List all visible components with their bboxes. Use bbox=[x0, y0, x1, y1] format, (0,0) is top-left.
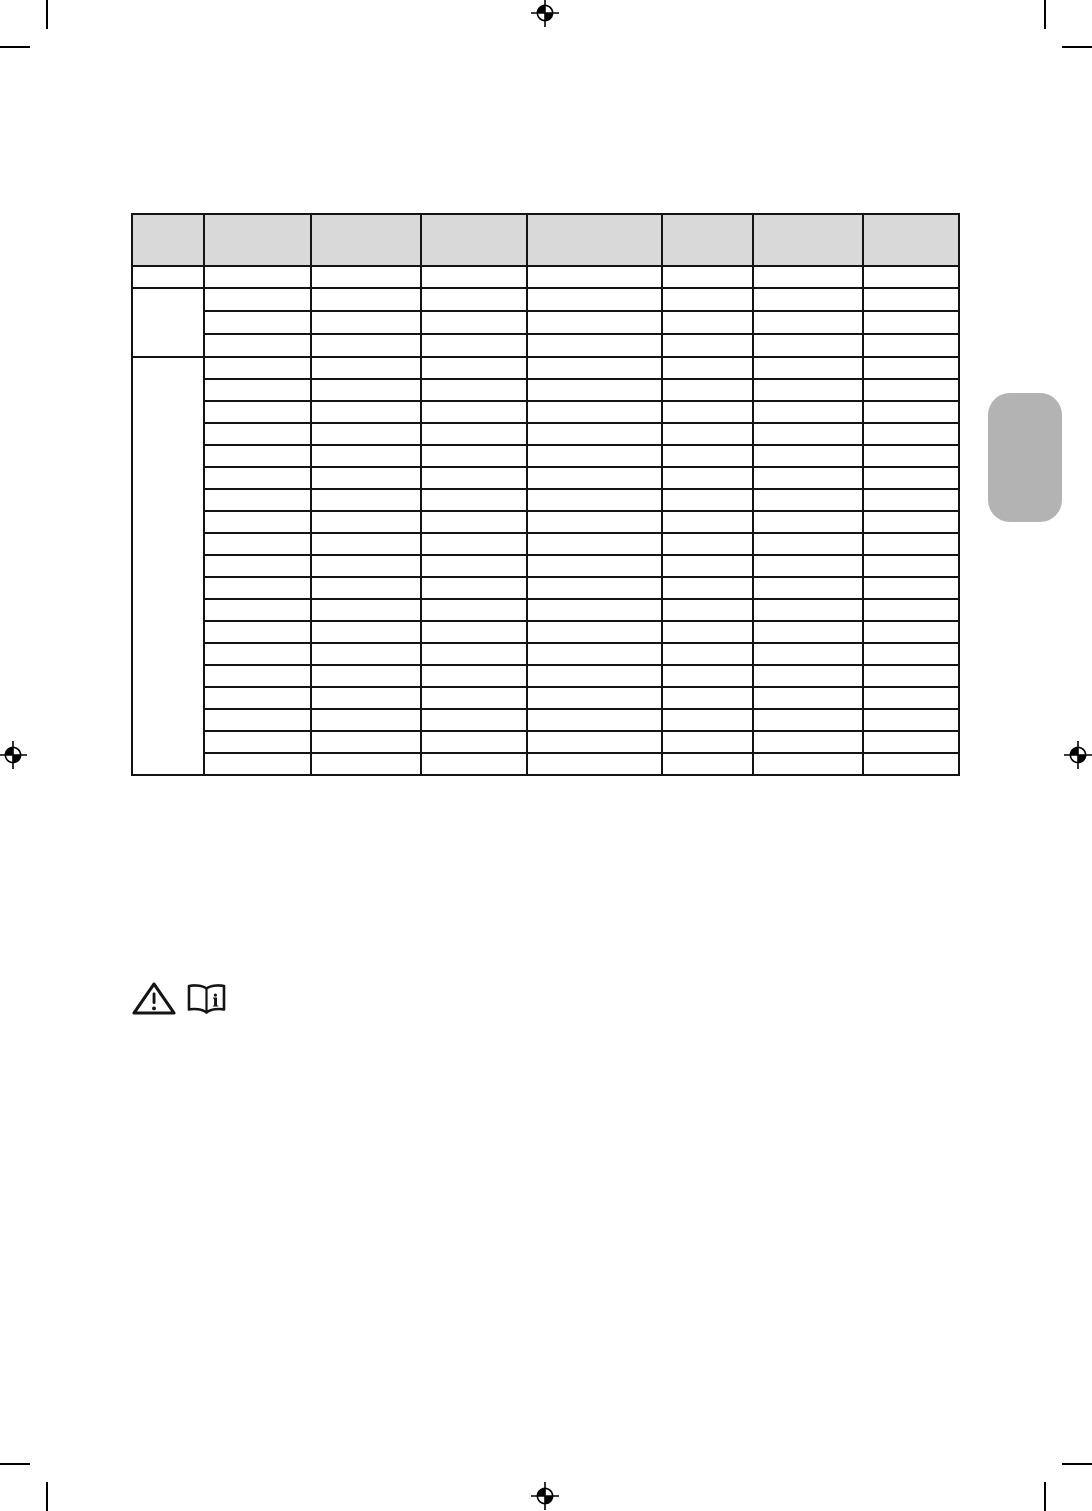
table-cell bbox=[863, 753, 959, 775]
table-cell bbox=[662, 467, 753, 489]
table-cell bbox=[204, 709, 311, 731]
table-cell bbox=[527, 423, 662, 445]
table-row bbox=[132, 687, 959, 709]
table-row bbox=[132, 311, 959, 334]
table-cell bbox=[421, 665, 527, 687]
table-cell bbox=[753, 445, 863, 467]
table-row bbox=[132, 445, 959, 467]
table-cell bbox=[863, 423, 959, 445]
table-row bbox=[132, 401, 959, 423]
table-cell bbox=[863, 643, 959, 665]
table-cell bbox=[662, 709, 753, 731]
table-cell bbox=[527, 311, 662, 334]
table-cell bbox=[204, 643, 311, 665]
table-cell bbox=[311, 423, 421, 445]
table-cell bbox=[863, 489, 959, 511]
table-row bbox=[132, 665, 959, 687]
table-row bbox=[132, 489, 959, 511]
table-cell bbox=[421, 266, 527, 288]
table-cell bbox=[311, 357, 421, 379]
table-cell bbox=[421, 643, 527, 665]
table-cell bbox=[421, 687, 527, 709]
table-cell bbox=[421, 334, 527, 357]
table-cell bbox=[753, 621, 863, 643]
table-cell bbox=[311, 266, 421, 288]
table-cell bbox=[204, 555, 311, 577]
table-header-cell bbox=[204, 214, 311, 266]
table-cell bbox=[527, 511, 662, 533]
table-cell bbox=[753, 599, 863, 621]
warning-triangle-icon bbox=[131, 981, 177, 1016]
table-row bbox=[132, 379, 959, 401]
table-cell bbox=[863, 687, 959, 709]
table-cell bbox=[662, 753, 753, 775]
table-cell bbox=[863, 731, 959, 753]
registration-mark-right-middle bbox=[1064, 741, 1092, 769]
table-header-cell bbox=[662, 214, 753, 266]
table-header bbox=[132, 214, 959, 266]
table-cell bbox=[204, 467, 311, 489]
table-cell bbox=[753, 423, 863, 445]
table-cell bbox=[421, 379, 527, 401]
table-cell bbox=[311, 665, 421, 687]
table-cell bbox=[662, 621, 753, 643]
table-header-cell bbox=[753, 214, 863, 266]
crop-mark-bottom-right-horizontal bbox=[1062, 1463, 1092, 1465]
table-cell bbox=[662, 288, 753, 311]
table-cell bbox=[421, 489, 527, 511]
table-cell bbox=[863, 357, 959, 379]
table-cell bbox=[421, 288, 527, 311]
table-header-cell bbox=[527, 214, 662, 266]
table-cell bbox=[311, 621, 421, 643]
table-rowgroup-label-cell bbox=[132, 357, 204, 775]
table-cell bbox=[204, 311, 311, 334]
table-cell bbox=[753, 334, 863, 357]
table-cell bbox=[421, 401, 527, 423]
table-cell bbox=[662, 577, 753, 599]
registration-mark-top-center bbox=[531, 0, 559, 27]
table-cell bbox=[204, 423, 311, 445]
table-header-cell bbox=[421, 214, 527, 266]
table-cell bbox=[311, 401, 421, 423]
table-cell bbox=[204, 334, 311, 357]
svg-text:i: i bbox=[212, 992, 219, 1012]
table-header-cell bbox=[311, 214, 421, 266]
registration-mark-left-middle bbox=[0, 741, 27, 769]
table-cell bbox=[753, 555, 863, 577]
table-cell bbox=[753, 511, 863, 533]
table-cell bbox=[527, 577, 662, 599]
table-cell bbox=[863, 445, 959, 467]
table-row bbox=[132, 467, 959, 489]
table-cell bbox=[311, 379, 421, 401]
table-cell bbox=[204, 753, 311, 775]
table-cell bbox=[863, 311, 959, 334]
table-cell bbox=[311, 555, 421, 577]
table-cell bbox=[311, 731, 421, 753]
crop-mark-top-right-horizontal bbox=[1062, 46, 1092, 48]
table-cell bbox=[662, 555, 753, 577]
registration-mark-bottom-center bbox=[531, 1482, 559, 1510]
crop-mark-top-right-vertical bbox=[1044, 0, 1046, 29]
table-cell bbox=[527, 266, 662, 288]
table-cell bbox=[421, 357, 527, 379]
instruction-manual-icon: i bbox=[184, 983, 229, 1016]
table-row bbox=[132, 599, 959, 621]
table-cell bbox=[527, 665, 662, 687]
table-row bbox=[132, 511, 959, 533]
table-cell bbox=[863, 709, 959, 731]
table-cell bbox=[863, 288, 959, 311]
table-cell bbox=[753, 665, 863, 687]
table-cell bbox=[753, 467, 863, 489]
table-cell bbox=[204, 665, 311, 687]
table-row bbox=[132, 577, 959, 599]
table-cell bbox=[527, 555, 662, 577]
table-cell bbox=[421, 445, 527, 467]
table-cell bbox=[662, 311, 753, 334]
table-cell bbox=[311, 577, 421, 599]
table-cell bbox=[753, 379, 863, 401]
table-cell bbox=[421, 533, 527, 555]
table-cell bbox=[662, 423, 753, 445]
table-cell bbox=[527, 621, 662, 643]
table-cell bbox=[421, 467, 527, 489]
crop-mark-bottom-left-horizontal bbox=[0, 1463, 30, 1465]
table-cell bbox=[863, 555, 959, 577]
table-cell bbox=[662, 445, 753, 467]
table-cell bbox=[662, 489, 753, 511]
table-cell bbox=[527, 753, 662, 775]
table-cell bbox=[753, 288, 863, 311]
crop-mark-bottom-right-vertical bbox=[1044, 1482, 1046, 1511]
table-cell bbox=[753, 311, 863, 334]
table-cell bbox=[753, 357, 863, 379]
table-cell bbox=[662, 379, 753, 401]
table-cell bbox=[311, 753, 421, 775]
table-cell bbox=[527, 709, 662, 731]
table-cell bbox=[753, 753, 863, 775]
table-cell bbox=[527, 357, 662, 379]
table-cell bbox=[204, 288, 311, 311]
table-cell bbox=[311, 643, 421, 665]
table-cell bbox=[311, 467, 421, 489]
table-row bbox=[132, 334, 959, 357]
table-cell bbox=[204, 357, 311, 379]
table-cell bbox=[527, 467, 662, 489]
table-header-cell bbox=[863, 214, 959, 266]
safety-symbols-row: i bbox=[131, 981, 229, 1016]
table-cell bbox=[421, 731, 527, 753]
table-row bbox=[132, 555, 959, 577]
table-cell bbox=[311, 511, 421, 533]
table-cell bbox=[311, 599, 421, 621]
section-thumb-tab bbox=[988, 393, 1062, 522]
table-cell bbox=[311, 489, 421, 511]
table-cell bbox=[421, 577, 527, 599]
manual-page: { "page": { "background_color": "#ffffff… bbox=[0, 0, 1092, 1511]
table-cell bbox=[662, 266, 753, 288]
table-cell bbox=[204, 577, 311, 599]
table-cell bbox=[421, 511, 527, 533]
table-cell bbox=[311, 288, 421, 311]
table-cell bbox=[753, 687, 863, 709]
table-cell bbox=[421, 555, 527, 577]
table-cell bbox=[527, 643, 662, 665]
table-cell bbox=[311, 533, 421, 555]
table-cell bbox=[863, 334, 959, 357]
table-cell bbox=[662, 687, 753, 709]
table-row bbox=[132, 621, 959, 643]
table-row bbox=[132, 357, 959, 379]
table-cell bbox=[421, 423, 527, 445]
table-cell bbox=[863, 577, 959, 599]
table-cell bbox=[204, 401, 311, 423]
table-cell bbox=[311, 445, 421, 467]
table-cell bbox=[204, 266, 311, 288]
table-cell bbox=[527, 401, 662, 423]
table-rowgroup-label-cell bbox=[132, 288, 204, 357]
table-row bbox=[132, 731, 959, 753]
table-cell bbox=[204, 621, 311, 643]
table-row bbox=[132, 533, 959, 555]
table-header-row bbox=[132, 214, 959, 266]
table-cell bbox=[204, 445, 311, 467]
table-cell bbox=[662, 357, 753, 379]
table-cell bbox=[753, 731, 863, 753]
table-cell bbox=[527, 599, 662, 621]
table-header-cell bbox=[132, 214, 204, 266]
crop-mark-top-left-horizontal bbox=[0, 46, 30, 48]
table-row bbox=[132, 288, 959, 311]
table-cell bbox=[527, 533, 662, 555]
table-cell bbox=[421, 753, 527, 775]
table-rowgroup-label-cell bbox=[132, 266, 204, 288]
table-cell bbox=[863, 533, 959, 555]
table-cell bbox=[527, 687, 662, 709]
table-cell bbox=[204, 687, 311, 709]
table-cell bbox=[527, 379, 662, 401]
table-cell bbox=[311, 311, 421, 334]
table-cell bbox=[662, 401, 753, 423]
table-cell bbox=[753, 533, 863, 555]
table-cell bbox=[753, 643, 863, 665]
table-cell bbox=[311, 687, 421, 709]
table-row bbox=[132, 423, 959, 445]
crop-mark-top-left-vertical bbox=[46, 0, 48, 29]
table-cell bbox=[863, 266, 959, 288]
table-cell bbox=[421, 311, 527, 334]
table-cell bbox=[863, 511, 959, 533]
table-cell bbox=[863, 621, 959, 643]
table-cell bbox=[863, 665, 959, 687]
table-cell bbox=[753, 401, 863, 423]
table-cell bbox=[204, 379, 311, 401]
table-cell bbox=[662, 731, 753, 753]
table-cell bbox=[527, 334, 662, 357]
table-cell bbox=[421, 709, 527, 731]
table-cell bbox=[662, 533, 753, 555]
table-cell bbox=[662, 643, 753, 665]
table-cell bbox=[662, 665, 753, 687]
table-cell bbox=[421, 599, 527, 621]
table-cell bbox=[421, 621, 527, 643]
table-cell bbox=[662, 511, 753, 533]
table-cell bbox=[753, 489, 863, 511]
table-cell bbox=[863, 467, 959, 489]
table-cell bbox=[204, 511, 311, 533]
table-cell bbox=[527, 445, 662, 467]
table-cell bbox=[311, 709, 421, 731]
table-row bbox=[132, 643, 959, 665]
table-row bbox=[132, 753, 959, 775]
table-cell bbox=[527, 489, 662, 511]
table-cell bbox=[863, 401, 959, 423]
table-row bbox=[132, 266, 959, 288]
table-cell bbox=[311, 334, 421, 357]
data-table bbox=[131, 213, 960, 776]
table-cell bbox=[753, 577, 863, 599]
table-cell bbox=[863, 599, 959, 621]
table-cell bbox=[204, 731, 311, 753]
crop-mark-bottom-left-vertical bbox=[46, 1482, 48, 1511]
table-body bbox=[132, 266, 959, 775]
table-cell bbox=[204, 489, 311, 511]
table-row bbox=[132, 709, 959, 731]
table-cell bbox=[527, 288, 662, 311]
table-cell bbox=[662, 334, 753, 357]
table-cell bbox=[204, 533, 311, 555]
table-cell bbox=[204, 599, 311, 621]
table-cell bbox=[753, 709, 863, 731]
table-cell bbox=[527, 731, 662, 753]
table-cell bbox=[863, 379, 959, 401]
table-cell bbox=[662, 599, 753, 621]
table-cell bbox=[753, 266, 863, 288]
